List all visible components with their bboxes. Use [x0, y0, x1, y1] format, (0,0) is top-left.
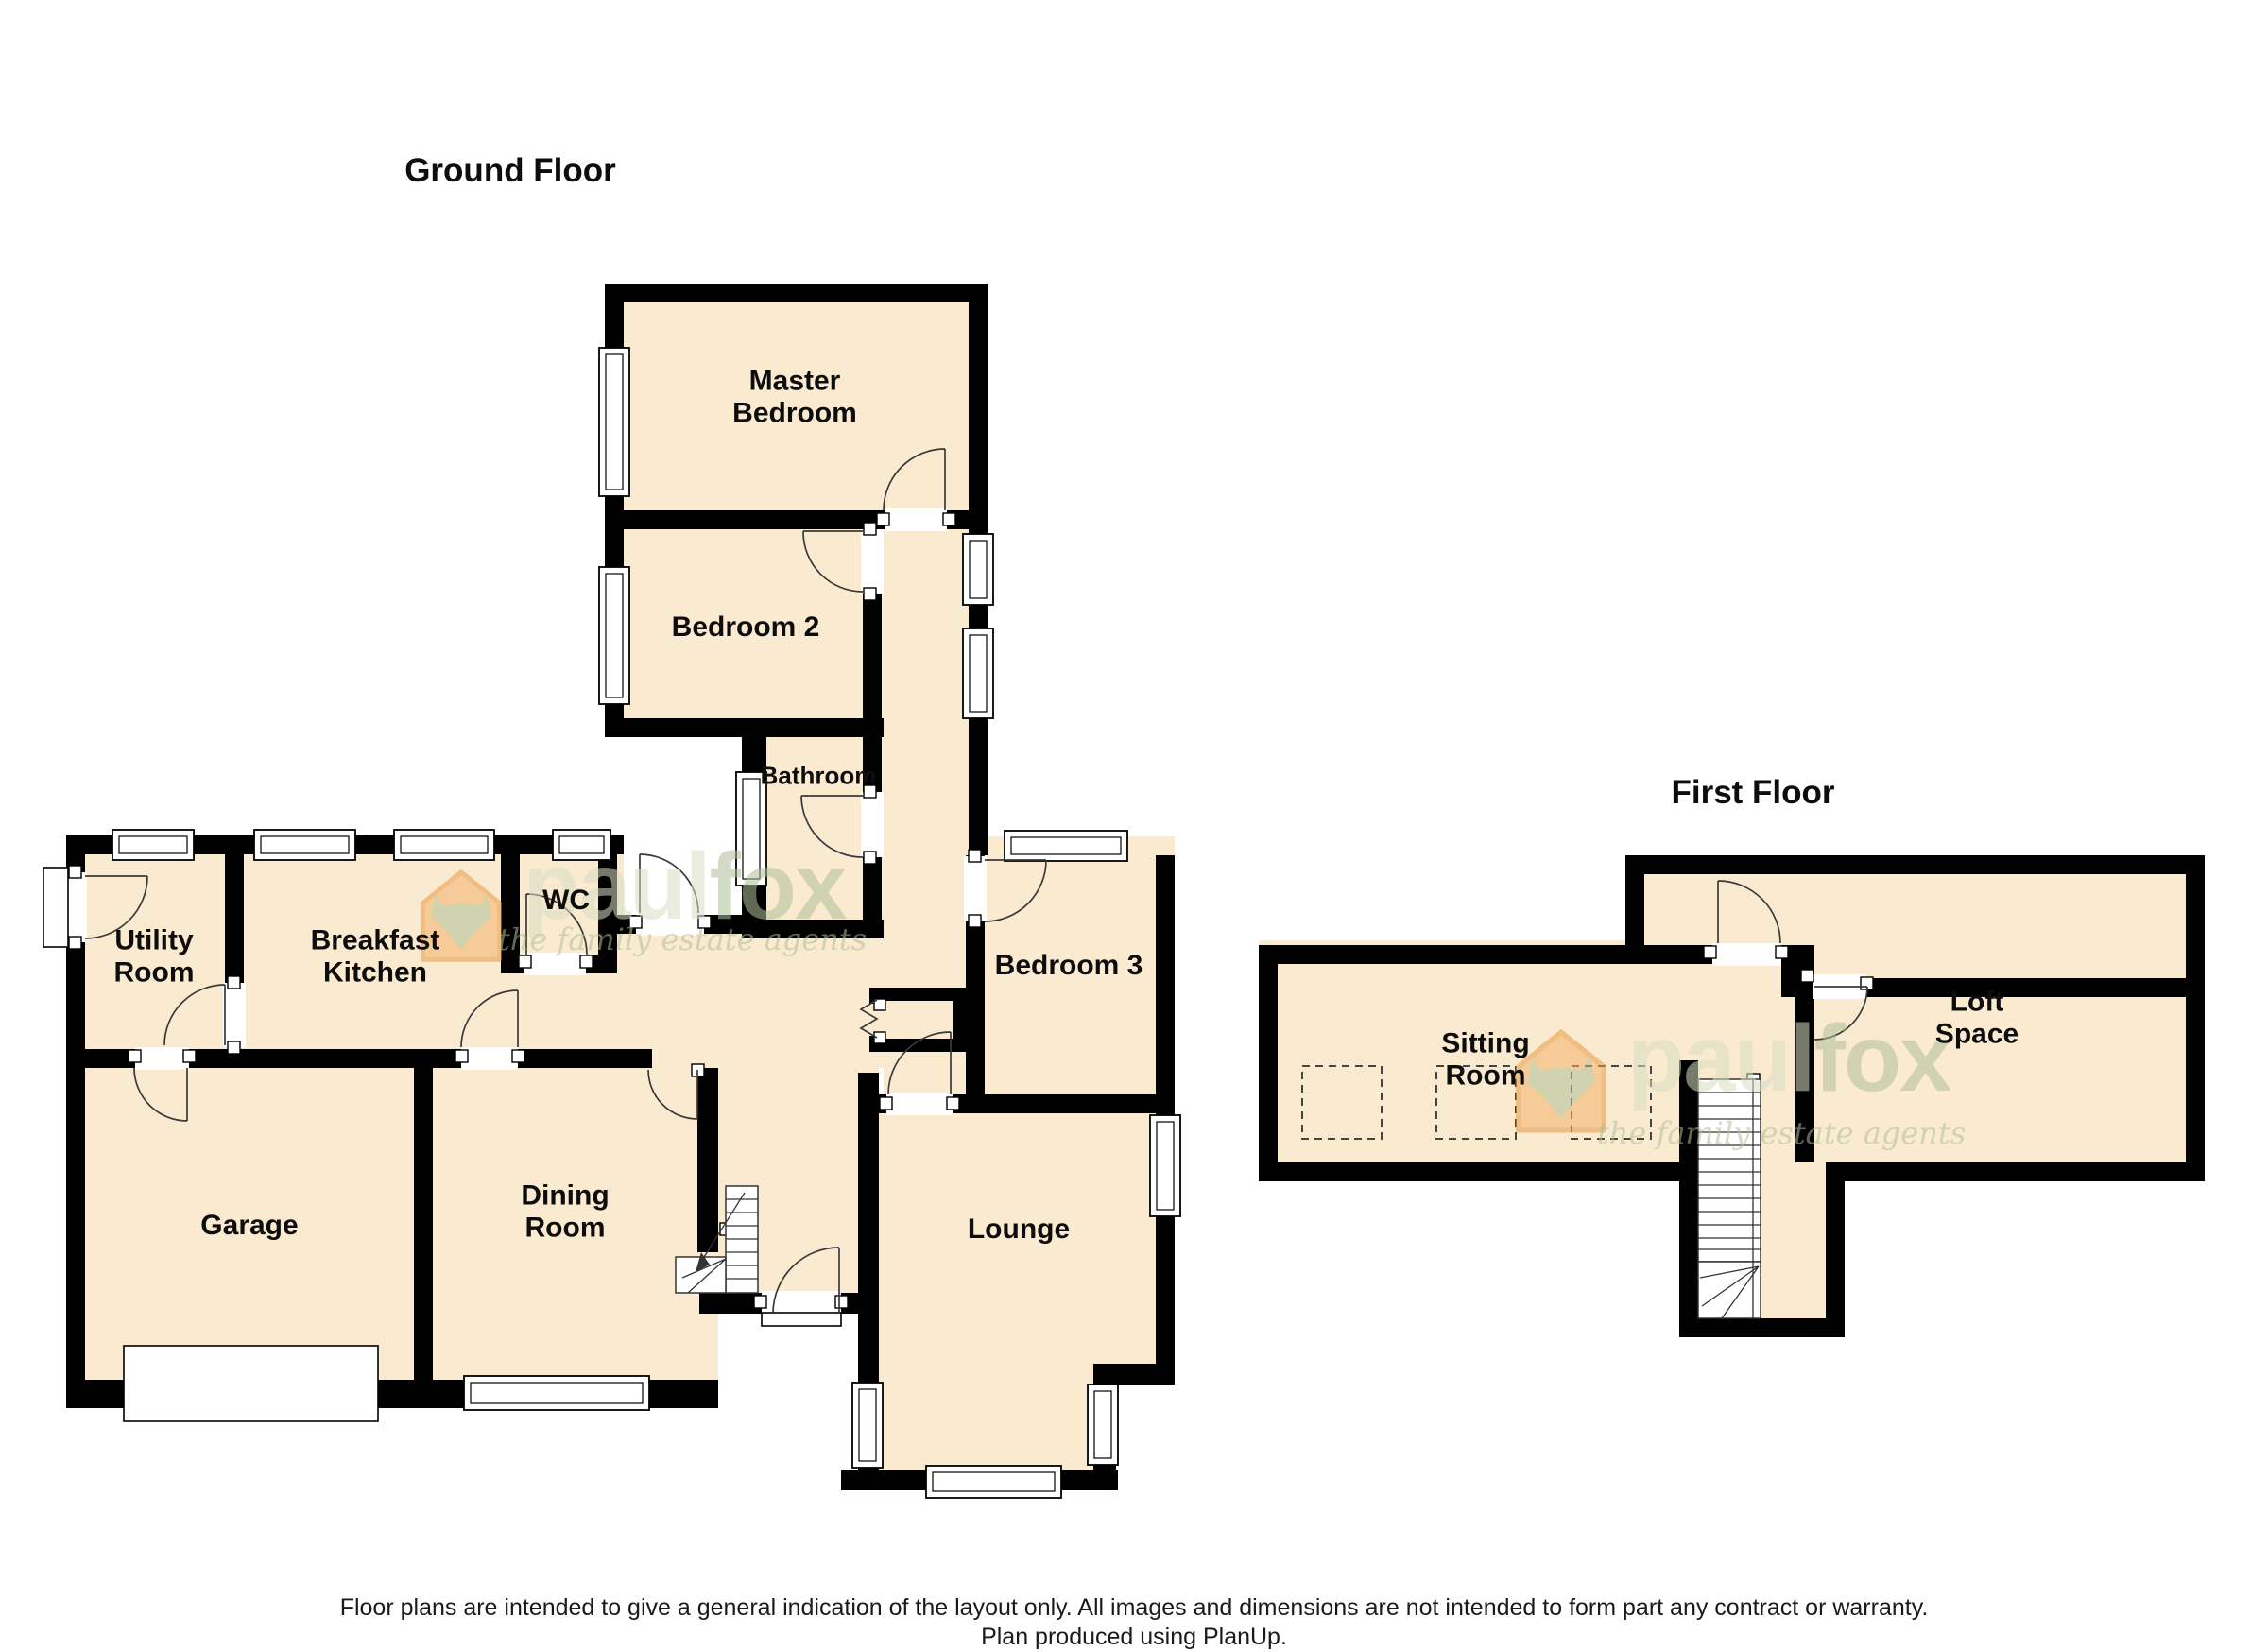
room-label-line: Bedroom 3 — [995, 950, 1143, 982]
watermark-tagline-first: the family estate agents — [1597, 1115, 1966, 1151]
first-floor-title: First Floor — [1671, 774, 1834, 812]
room-label-line: Kitchen — [311, 956, 440, 989]
room-label-line: Space — [1935, 1018, 2019, 1050]
room-label-line: Utility — [114, 924, 195, 956]
room-label-dining: Dining Room — [521, 1179, 609, 1243]
room-label-kitchen: Breakfast Kitchen — [311, 924, 440, 988]
room-label-loft-space: Loft Space — [1935, 986, 2019, 1049]
room-label-line: Breakfast — [311, 924, 440, 956]
room-label-garage: Garage — [200, 1210, 298, 1242]
room-label-line: WC — [542, 885, 590, 917]
room-label-bedroom3: Bedroom 3 — [995, 950, 1143, 982]
room-label-line: Dining — [521, 1179, 609, 1212]
room-label-line: Master — [732, 365, 857, 397]
floorplan-page: paulfox the family estate agents paulfox… — [0, 0, 2268, 1649]
room-label-line: Room — [521, 1212, 609, 1244]
room-label-line: Bedroom — [732, 397, 857, 429]
room-label-sitting-room: Sitting Room — [1441, 1027, 1529, 1091]
watermark-tagline-ground: the family estate agents — [498, 921, 867, 957]
room-label-line: Lounge — [968, 1213, 1070, 1246]
room-label-line: Room — [114, 956, 195, 989]
watermark-part1: paul — [1627, 1006, 1814, 1111]
disclaimer-line2: Plan produced using PlanUp. — [0, 1623, 2268, 1652]
watermark-part2: fox — [1814, 1006, 1950, 1111]
watermark-word-first: paulfox — [1627, 1011, 1950, 1106]
room-label-line: Loft — [1935, 986, 2019, 1018]
disclaimer-line1: Floor plans are intended to give a gener… — [0, 1593, 2268, 1623]
room-label-utility: Utility Room — [114, 924, 195, 988]
garage-door — [124, 1346, 378, 1421]
room-label-bathroom: Bathroom — [761, 762, 877, 789]
ground-floor-title: Ground Floor — [404, 152, 616, 190]
disclaimer: Floor plans are intended to give a gener… — [0, 1593, 2268, 1652]
room-label-lounge: Lounge — [968, 1213, 1070, 1246]
floorplan-drawing — [0, 0, 2268, 1649]
room-label-line: Room — [1441, 1059, 1529, 1092]
room-label-line: Garage — [200, 1210, 298, 1242]
room-label-line: Sitting — [1441, 1027, 1529, 1059]
room-label-wc: WC — [542, 885, 590, 917]
room-label-line: Bedroom 2 — [672, 611, 820, 644]
room-label-bedroom2: Bedroom 2 — [672, 611, 820, 644]
room-label-master-bedroom: Master Bedroom — [732, 365, 857, 428]
room-label-line: Bathroom — [761, 762, 877, 789]
